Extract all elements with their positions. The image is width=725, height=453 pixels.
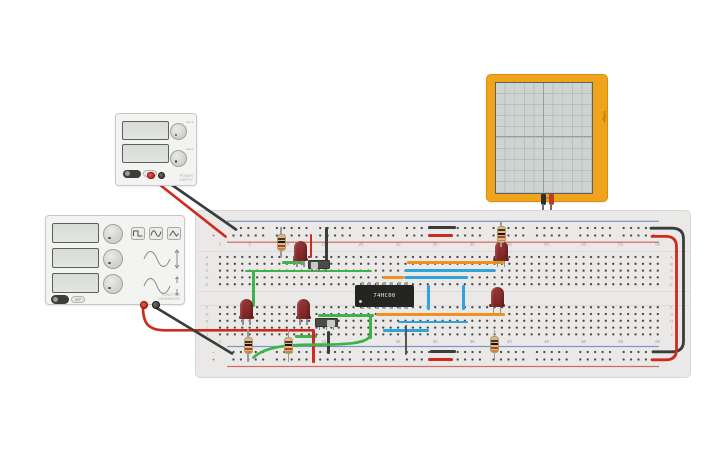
oscilloscope[interactable]: Voltage Time xyxy=(486,74,608,202)
channel-1-label: CH-1 xyxy=(186,120,193,124)
breadboard-channel-top-edge xyxy=(198,291,690,292)
breadboard-channel-bottom-edge xyxy=(198,305,690,306)
circuit-canvas: 1155101015152020252530303535404045455050… xyxy=(0,0,725,453)
sine-wave-button[interactable] xyxy=(149,227,163,240)
function-generator[interactable]: OFF FUNCTION GENERATOR xyxy=(45,215,185,305)
power-supply-display-2 xyxy=(122,144,169,163)
scope-negative-probe[interactable] xyxy=(541,194,546,205)
square-wave-icon xyxy=(132,229,144,238)
sine-wave-icon xyxy=(150,229,162,238)
function-generator-positive-terminal[interactable] xyxy=(140,301,148,309)
offset-knob[interactable] xyxy=(103,274,123,294)
power-supply-negative-terminal[interactable] xyxy=(158,172,166,180)
scope-time-label: Time xyxy=(487,196,607,200)
function-generator-brand: FUNCTION GENERATOR xyxy=(158,293,180,301)
breadboard-seam-top xyxy=(198,251,690,252)
function-generator-off-label: OFF xyxy=(71,296,85,303)
power-supply-brand: POWER SUPPLY xyxy=(179,174,193,182)
oscilloscope-screen xyxy=(495,82,593,194)
power-supply-positive-terminal[interactable] xyxy=(147,172,155,180)
scope-positive-probe[interactable] xyxy=(549,194,554,205)
function-generator-display-3 xyxy=(52,273,99,293)
power-supply-knob-2[interactable] xyxy=(170,150,187,167)
function-generator-display-2 xyxy=(52,248,99,268)
scope-center-horizontal-line xyxy=(496,136,592,138)
breadboard[interactable] xyxy=(195,210,691,378)
amplitude-diagram-icon xyxy=(141,247,183,271)
power-supply-power-toggle[interactable] xyxy=(123,170,141,179)
power-supply[interactable]: CH-1 CH-2 OFF POWER SUPPLY xyxy=(115,113,197,186)
power-supply-knob-1[interactable] xyxy=(170,123,187,140)
function-generator-display-1 xyxy=(52,223,99,243)
power-supply-display-1 xyxy=(122,121,169,140)
scope-center-vertical-line xyxy=(543,83,545,193)
function-generator-power-toggle[interactable] xyxy=(51,295,69,304)
amplitude-knob[interactable] xyxy=(103,249,123,269)
frequency-knob[interactable] xyxy=(103,224,123,244)
square-wave-button[interactable] xyxy=(131,227,145,240)
function-generator-negative-terminal[interactable] xyxy=(152,301,160,309)
channel-2-label: CH-2 xyxy=(186,147,193,151)
triangle-wave-icon xyxy=(168,229,180,238)
triangle-wave-button[interactable] xyxy=(167,227,181,240)
scope-voltage-label: Voltage xyxy=(603,111,607,122)
